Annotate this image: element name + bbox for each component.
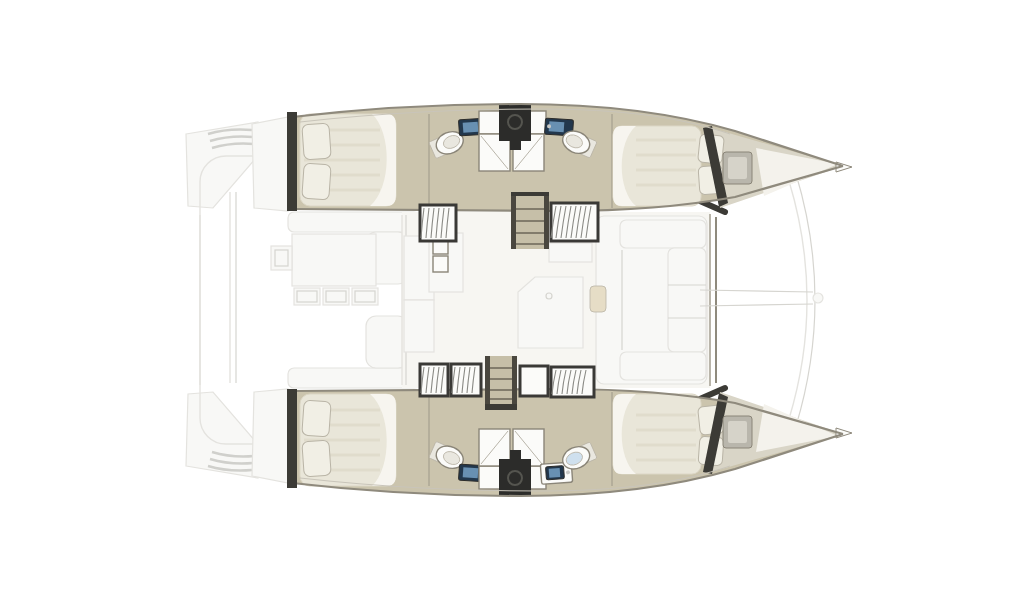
pillow	[302, 123, 331, 160]
floorplan-svg	[0, 0, 1024, 600]
cockpit-bench-aft-port	[288, 212, 420, 232]
hull-stern-port	[252, 117, 288, 211]
bowsprit	[700, 290, 823, 306]
louver-hatch	[420, 364, 448, 396]
companionway-stairs-starboard	[485, 356, 517, 410]
forward-crossbeam	[796, 174, 815, 426]
shower-stalls-starboard	[479, 429, 546, 496]
stern-swim-platform-port	[186, 122, 262, 208]
catamaran-floorplan-canvas	[0, 0, 1024, 600]
louver-hatch	[551, 367, 594, 397]
locker-panel	[520, 366, 548, 396]
aft-cabin-starboard	[300, 394, 396, 486]
aft-cabin-wall	[287, 112, 297, 211]
forestay-fitting	[813, 293, 823, 303]
cockpit-bench-aft-starboard	[288, 368, 420, 388]
starboard-hull	[287, 389, 852, 496]
salon-step	[549, 243, 592, 262]
pillow	[302, 163, 331, 200]
cockpit-table	[292, 234, 376, 286]
stern-swim-platform-starboard	[186, 392, 262, 478]
lounge-cushion	[590, 286, 606, 312]
cockpit-table-and-chairs	[271, 234, 378, 305]
pillow	[302, 400, 331, 437]
aft-cabin-wall	[287, 389, 297, 488]
pillow	[302, 440, 331, 477]
aft-cabin-port	[300, 114, 396, 206]
louver-hatch	[551, 203, 598, 241]
salon-lounge	[590, 216, 707, 384]
island-body	[518, 277, 583, 348]
companionway-stairs-port	[511, 192, 549, 249]
galley-cabinet	[404, 300, 434, 352]
port-hull	[287, 104, 852, 211]
shower-stalls-port	[479, 104, 546, 171]
hull-stern-starboard	[252, 389, 288, 483]
louver-hatch	[420, 205, 456, 241]
galley-sink-basin	[433, 256, 448, 272]
louver-hatch	[451, 364, 481, 396]
